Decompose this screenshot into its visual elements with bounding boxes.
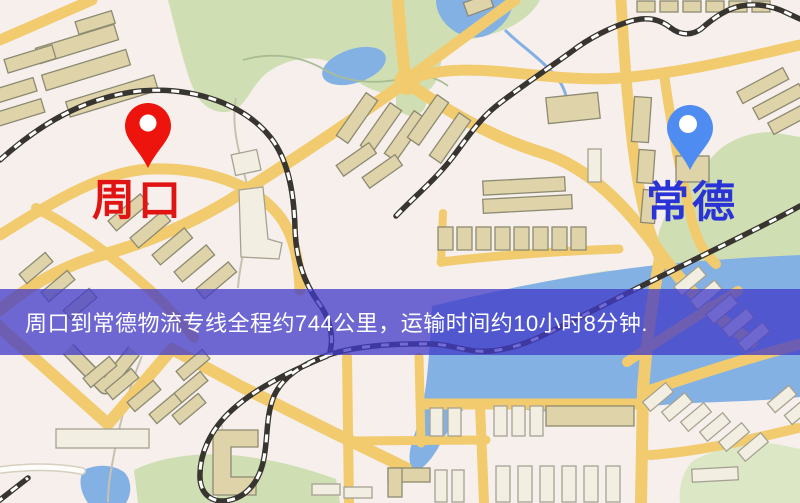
destination-label: 常德 <box>646 179 738 227</box>
origin-label: 周口 <box>92 177 184 225</box>
origin-pin[interactable] <box>125 103 171 168</box>
red-pin-icon <box>125 103 171 168</box>
route-info-banner: 周口到常德物流专线全程约744公里，运输时间约10小时8分钟. <box>0 289 800 355</box>
map-canvas[interactable]: 周口 常德 周口到常德物流专线全程约744公里，运输时间约10小时8分钟. <box>0 0 800 503</box>
route-info-text: 周口到常德物流专线全程约744公里，运输时间约10小时8分钟. <box>25 306 648 338</box>
